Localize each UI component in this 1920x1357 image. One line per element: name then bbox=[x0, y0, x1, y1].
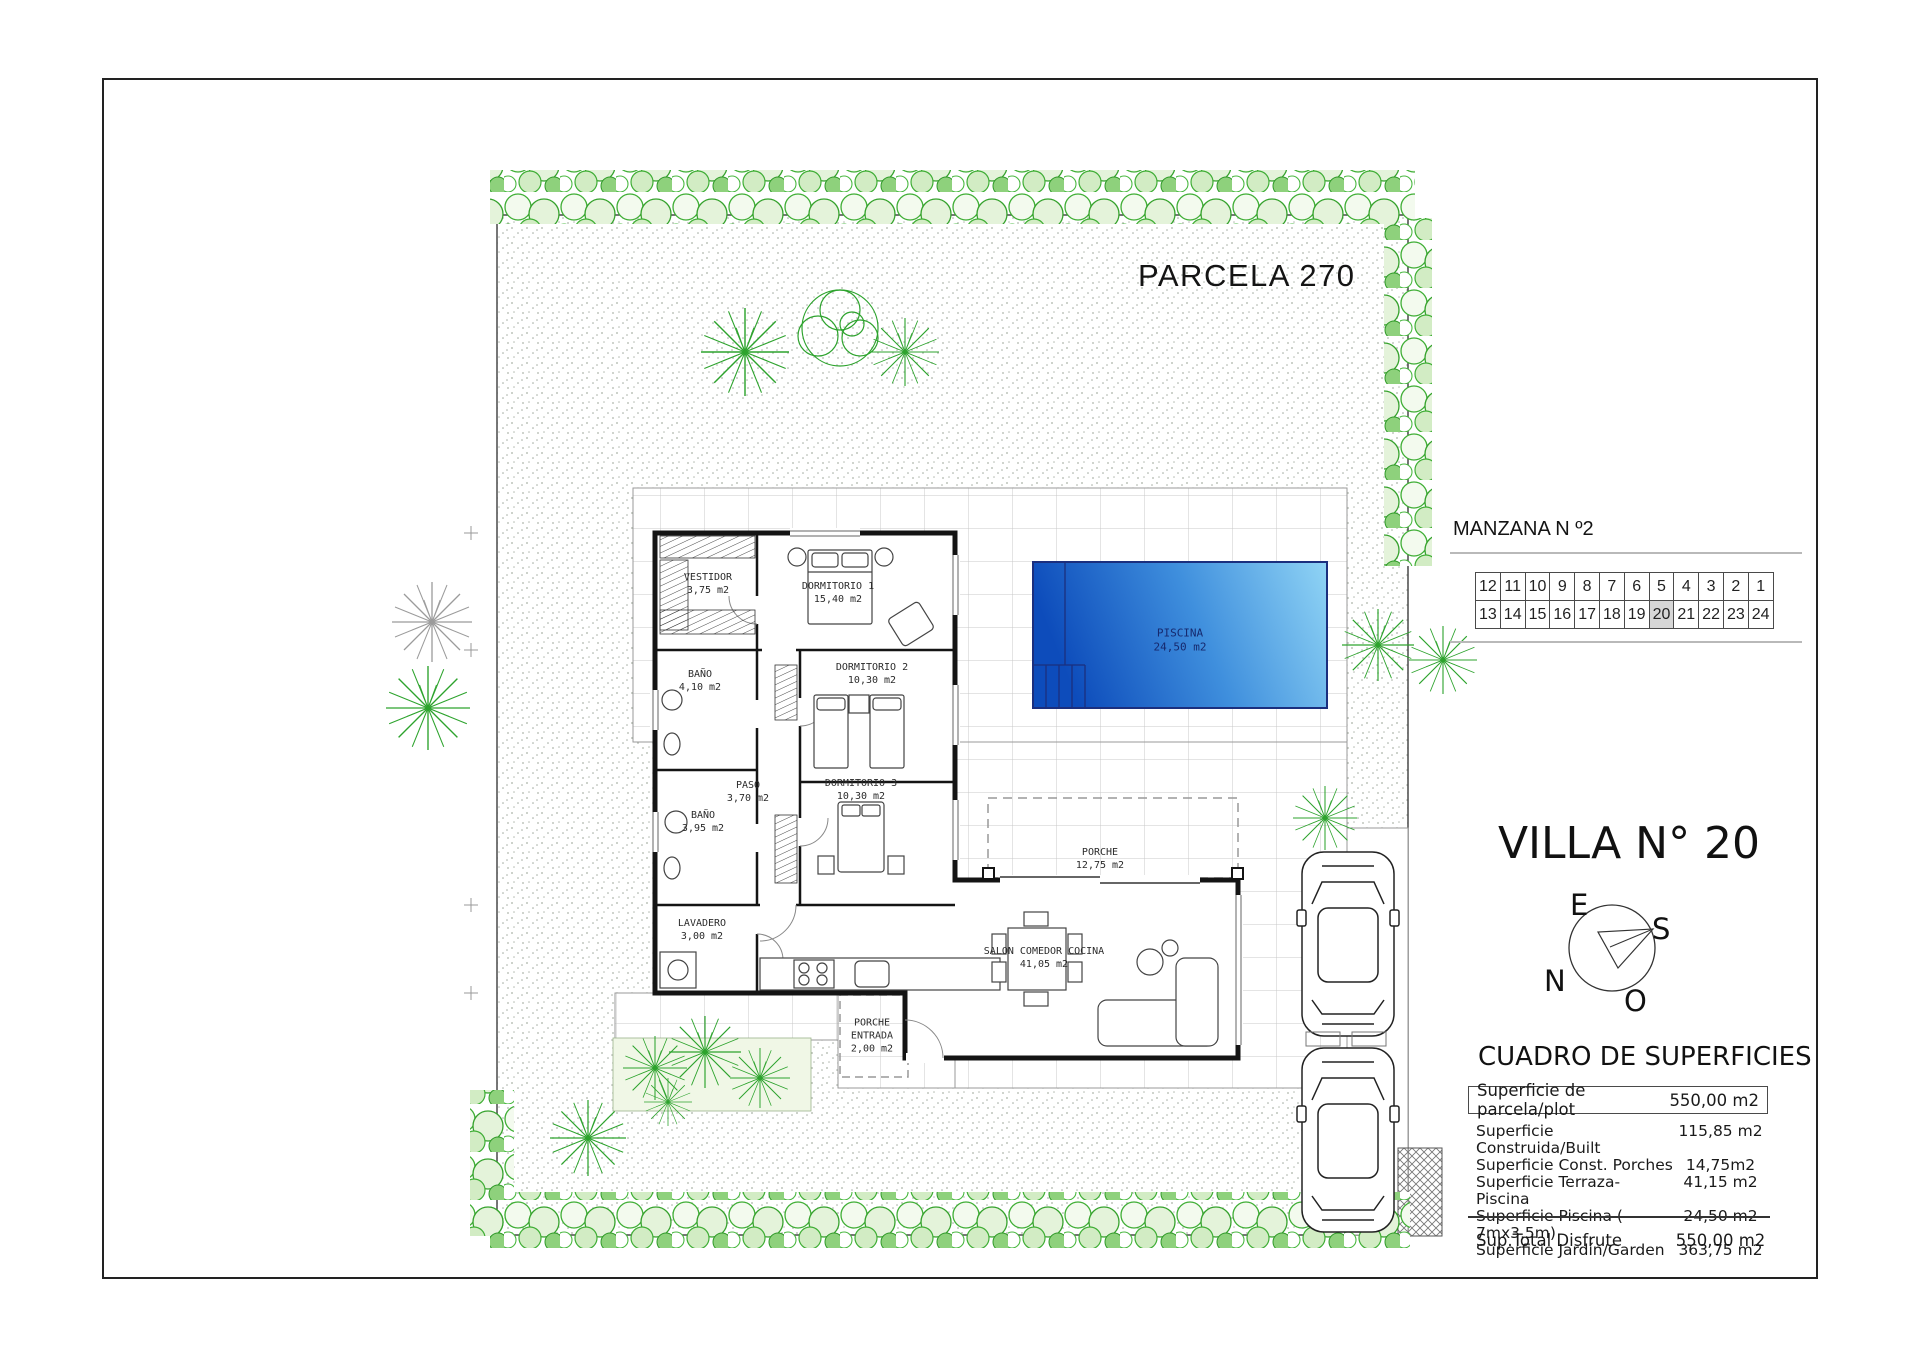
plot-cell: 18 bbox=[1600, 601, 1625, 629]
room-label-salon: SALON COMEDOR COCINA41,05 m2 bbox=[984, 945, 1104, 971]
plot-cell: 10 bbox=[1526, 573, 1551, 601]
compass-east-label: E bbox=[1570, 888, 1588, 922]
room-label-bano-2: BAÑO3,95 m2 bbox=[682, 809, 724, 835]
plot-cell: 23 bbox=[1724, 601, 1749, 629]
room-label-porche-entrada: PORCHE ENTRADA2,00 m2 bbox=[838, 1017, 906, 1056]
plot-cell: 14 bbox=[1501, 601, 1526, 629]
plot-cell: 13 bbox=[1476, 601, 1501, 629]
separator-line bbox=[1450, 641, 1802, 643]
plot-cell: 16 bbox=[1550, 601, 1575, 629]
plot-cell: 21 bbox=[1674, 601, 1699, 629]
plot-cell: 5 bbox=[1650, 573, 1675, 601]
plot-cell: 1 bbox=[1749, 573, 1774, 601]
plot-cell: 4 bbox=[1674, 573, 1699, 601]
plot-cell: 9 bbox=[1550, 573, 1575, 601]
room-label-vestidor: VESTIDOR3,75 m2 bbox=[684, 571, 732, 597]
surfaces-plot-row: Superficie de parcela/plot 550,00 m2 bbox=[1468, 1086, 1768, 1114]
surfaces-row: Superficie Const. Porches 14,75m2 bbox=[1468, 1157, 1768, 1174]
plot-cell: 2 bbox=[1724, 573, 1749, 601]
surfaces-row: Superficie Terraza-Piscina 41,15 m2 bbox=[1468, 1174, 1768, 1208]
room-label-dormitorio-1: DORMITORIO 115,40 m2 bbox=[802, 580, 874, 606]
surfaces-total-value: 550,00 m2 bbox=[1673, 1231, 1768, 1250]
separator-line bbox=[1450, 552, 1802, 554]
plot-cell: 8 bbox=[1575, 573, 1600, 601]
porch-column bbox=[983, 868, 994, 879]
plan-sheet: PARCELA 270 VESTIDOR3,75 m2 DORMITORIO 1… bbox=[0, 0, 1920, 1357]
plot-cell: 12 bbox=[1476, 573, 1501, 601]
room-label-dormitorio-2: DORMITORIO 210,30 m2 bbox=[836, 661, 908, 687]
surface-value: 41,15 m2 bbox=[1673, 1174, 1768, 1208]
parcel-title: PARCELA 270 bbox=[1138, 258, 1356, 294]
plot-cell: 15 bbox=[1526, 601, 1551, 629]
room-label-bano-1: BAÑO4,10 m2 bbox=[679, 668, 721, 694]
villa-title: VILLA N° 20 bbox=[1495, 818, 1763, 869]
plot-cell: 24 bbox=[1749, 601, 1774, 629]
compass-west-label: O bbox=[1624, 984, 1647, 1018]
surface-value: 14,75m2 bbox=[1673, 1157, 1768, 1174]
surfaces-divider bbox=[1468, 1216, 1770, 1218]
porch-column bbox=[1232, 868, 1243, 879]
plot-cell: 3 bbox=[1699, 573, 1724, 601]
surfaces-total-row: Sup.Total Disfrute 550,00 m2 bbox=[1468, 1231, 1768, 1250]
plot-cell: 17 bbox=[1575, 601, 1600, 629]
grid-marks bbox=[464, 526, 478, 1000]
plot-cell: 19 bbox=[1625, 601, 1650, 629]
surfaces-plot-value: 550,00 m2 bbox=[1669, 1091, 1759, 1110]
plot-cell: 11 bbox=[1501, 573, 1526, 601]
surfaces-total-label: Sup.Total Disfrute bbox=[1476, 1231, 1622, 1250]
surfaces-row: Superficie Construida/Built 115,85 m2 bbox=[1468, 1123, 1768, 1157]
surface-label: Superficie Terraza-Piscina bbox=[1476, 1174, 1673, 1208]
compass-south-label: S bbox=[1652, 912, 1670, 946]
room-label-paso: PASO3,70 m2 bbox=[727, 779, 769, 805]
surfaces-plot-label: Superficie de parcela/plot bbox=[1477, 1081, 1669, 1119]
manzana-label: MANZANA N º2 bbox=[1453, 518, 1594, 541]
surfaces-title: CUADRO DE SUPERFICIES bbox=[1478, 1042, 1812, 1072]
plot-number-grid: 12 11 10 9 8 7 6 5 4 3 2 1 13 14 15 16 1… bbox=[1475, 572, 1774, 629]
plot-cell-highlighted: 20 bbox=[1650, 601, 1675, 629]
surface-label: Superficie Const. Porches bbox=[1476, 1157, 1673, 1174]
plot-cell: 6 bbox=[1625, 573, 1650, 601]
room-label-piscina: PISCINA24,50 m2 bbox=[1154, 627, 1207, 656]
plot-cell: 7 bbox=[1600, 573, 1625, 601]
compass-north-label: N bbox=[1544, 964, 1566, 998]
room-label-lavadero: LAVADERO3,00 m2 bbox=[678, 917, 726, 943]
surface-value: 115,85 m2 bbox=[1673, 1123, 1768, 1157]
plot-cell: 22 bbox=[1699, 601, 1724, 629]
room-label-porche: PORCHE12,75 m2 bbox=[1076, 846, 1124, 872]
surface-label: Superficie Construida/Built bbox=[1476, 1123, 1673, 1157]
room-label-dormitorio-3: DORMITORIO 310,30 m2 bbox=[825, 777, 897, 803]
